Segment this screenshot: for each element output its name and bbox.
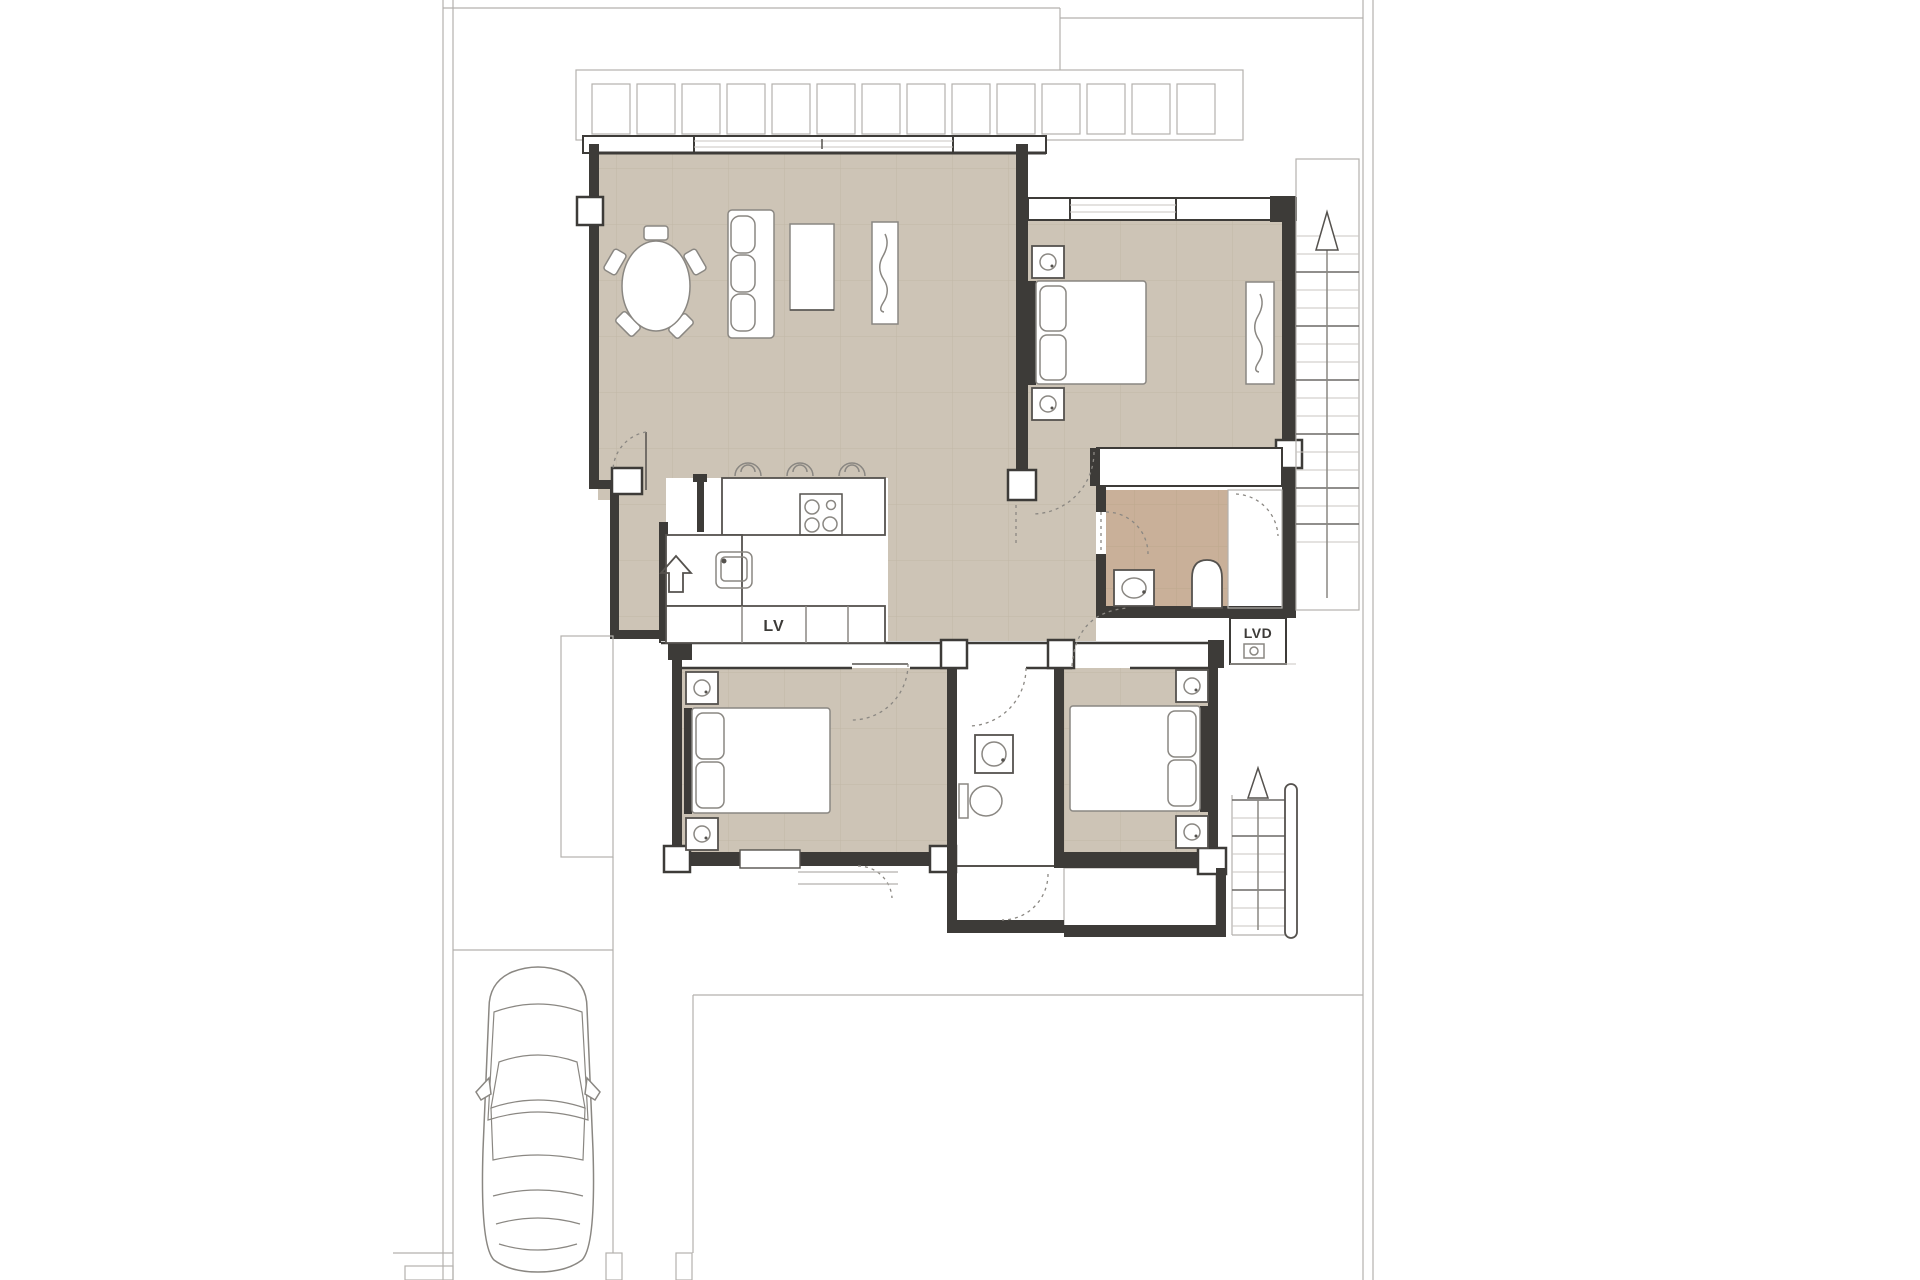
bathroom-2-south-wall (947, 920, 1064, 933)
nightstand (1032, 246, 1064, 278)
sideboard (872, 222, 898, 324)
headboard (1028, 281, 1036, 385)
laundry-closet: LVD (1230, 618, 1296, 664)
porch-outline (561, 636, 613, 857)
bedroom-2-west-wall (672, 660, 682, 855)
wall-nub (693, 474, 707, 482)
double-bed (1070, 706, 1208, 812)
bathroom-1-west-wall (1096, 554, 1106, 608)
coffee-table (790, 224, 834, 310)
laundry-label: LVD (1244, 625, 1272, 641)
kitchen-counter (666, 535, 742, 606)
staircase-upper (1296, 159, 1359, 610)
washbasin (1114, 570, 1154, 606)
pillar (612, 468, 642, 494)
bedroom-3-north-wall (1048, 640, 1224, 668)
living-west-wall (589, 144, 599, 482)
pillar (1208, 640, 1224, 668)
rear-south-wall (1064, 925, 1226, 937)
floor-plan-drawing: LVD (0, 0, 1920, 1280)
bathroom-2-east-wall (1054, 660, 1064, 852)
living-east-wall (1016, 144, 1028, 500)
pillow (696, 713, 724, 759)
pillow (1168, 760, 1196, 806)
bathroom-2-west-wall (947, 852, 957, 927)
stair-direction-arrow-icon (1316, 212, 1338, 250)
kitchen-partition-wall (697, 478, 704, 532)
dishwasher-cabinet: LV (666, 606, 885, 643)
car-body (482, 967, 593, 1272)
dining-chair (644, 226, 668, 240)
pillar (1008, 470, 1036, 500)
rear-steps (798, 872, 898, 884)
bedroom-1-south-wall (1097, 448, 1282, 486)
entry-floor (617, 486, 666, 632)
car (476, 967, 600, 1272)
pillar (941, 640, 967, 668)
toilet (1192, 560, 1222, 608)
nightstand (1176, 816, 1208, 848)
nightstand (686, 818, 718, 850)
double-bed (1028, 281, 1146, 385)
bedroom-2-east-wall (947, 660, 957, 852)
fence-post (606, 1253, 622, 1280)
living-north-wall (583, 136, 1046, 153)
bathroom-2-north-wall (941, 640, 1064, 668)
dishwasher-label: LV (763, 618, 784, 635)
pillow (1168, 711, 1196, 757)
stair-railing (1285, 784, 1297, 938)
rear-porch (1064, 868, 1216, 928)
pillar (1048, 640, 1074, 668)
nightstand (686, 672, 718, 704)
pergola-roof (576, 70, 1243, 140)
shower-floor (1228, 490, 1282, 608)
bedroom-1-north-wall (1028, 196, 1296, 222)
window (740, 850, 800, 868)
stair-direction-arrow-icon (1248, 768, 1268, 798)
washbasin (975, 735, 1013, 773)
entry-west-wall (610, 480, 619, 638)
kitchen-island (722, 478, 885, 535)
east-wall (1282, 203, 1296, 615)
hallway-floor (1028, 448, 1096, 486)
nightstand (1176, 670, 1208, 702)
bedroom-3-south-wall (1054, 852, 1216, 868)
bathroom-2-floor (957, 655, 1057, 925)
dining-table (622, 241, 690, 331)
double-bed (684, 708, 830, 814)
pergola-slats (592, 84, 1215, 134)
nightstand (1032, 388, 1064, 420)
pillow (696, 762, 724, 808)
toilet (959, 784, 1002, 818)
headboard (684, 708, 692, 814)
sofa (728, 210, 774, 338)
floor-plan-sheet: LVD (0, 0, 1920, 1280)
pillar (577, 197, 603, 225)
pillow (1040, 335, 1066, 380)
bedroom-3-east-wall (1208, 668, 1218, 868)
wardrobe (1246, 282, 1274, 384)
bathroom-1-west-wall (1096, 486, 1106, 512)
headboard (1200, 706, 1208, 812)
pillow (1040, 286, 1066, 331)
fence-post (676, 1253, 692, 1280)
staircase-lower (1232, 768, 1297, 938)
door-swing (858, 866, 892, 898)
gate-step (405, 1266, 453, 1280)
hallway-floor (888, 478, 1096, 648)
bedroom-2-south-wall (676, 852, 938, 866)
